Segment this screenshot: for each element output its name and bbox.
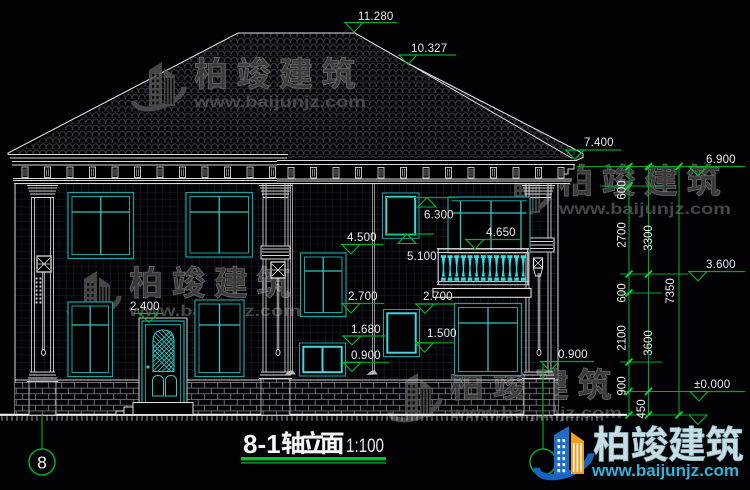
svg-text:1:100: 1:100 xyxy=(346,436,384,457)
svg-text:±0.000: ±0.000 xyxy=(694,379,730,391)
svg-text:2.700: 2.700 xyxy=(348,291,378,303)
svg-text:0.900: 0.900 xyxy=(558,349,588,361)
svg-text:10.327: 10.327 xyxy=(411,43,447,55)
svg-text:2100: 2100 xyxy=(617,325,629,351)
svg-text:900: 900 xyxy=(617,376,629,395)
svg-text:6.300: 6.300 xyxy=(424,210,454,222)
svg-text:7350: 7350 xyxy=(665,278,677,304)
svg-text:7.400: 7.400 xyxy=(584,137,614,149)
svg-text:www.baijunjz.com: www.baijunjz.com xyxy=(558,201,731,218)
svg-text:1.500: 1.500 xyxy=(427,328,457,340)
svg-text:0.900: 0.900 xyxy=(351,350,381,362)
svg-text:600: 600 xyxy=(617,180,629,199)
svg-text:4.650: 4.650 xyxy=(486,227,516,239)
svg-text:600: 600 xyxy=(617,283,629,302)
svg-text:11.280: 11.280 xyxy=(358,11,394,23)
svg-text:2700: 2700 xyxy=(617,222,629,248)
svg-text:2.700: 2.700 xyxy=(423,291,453,303)
svg-text:6.900: 6.900 xyxy=(706,154,736,166)
svg-text:www.baijunjz.com: www.baijunjz.com xyxy=(591,462,739,480)
svg-text:450: 450 xyxy=(636,399,648,418)
svg-text:8: 8 xyxy=(37,453,47,473)
svg-text:5.100: 5.100 xyxy=(407,251,437,263)
svg-text:2.400: 2.400 xyxy=(130,301,160,313)
svg-text:3600: 3600 xyxy=(643,330,655,356)
svg-text:3300: 3300 xyxy=(643,225,655,251)
svg-text:www.baijunjz.com: www.baijunjz.com xyxy=(193,94,366,111)
svg-text:8-1: 8-1 xyxy=(243,429,281,459)
svg-text:1.680: 1.680 xyxy=(351,324,381,336)
svg-text:4.500: 4.500 xyxy=(347,232,377,244)
svg-text:3.600: 3.600 xyxy=(706,259,736,271)
